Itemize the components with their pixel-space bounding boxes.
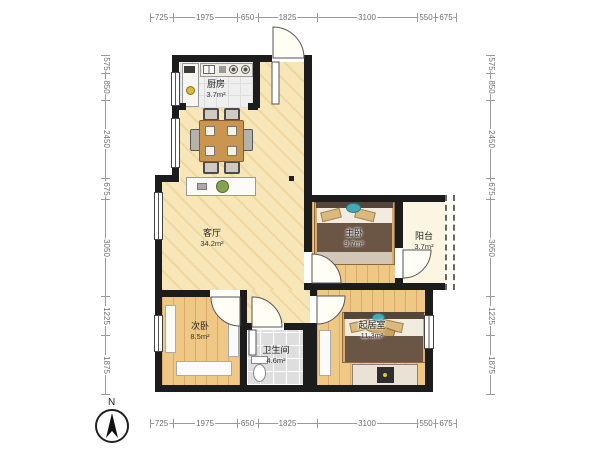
entrance-door-arc <box>273 27 304 58</box>
master-door-arc <box>312 254 341 283</box>
compass-icon <box>95 409 129 443</box>
compass-north-label: N <box>108 397 115 408</box>
room-label-balcony: 阳台3.7m² <box>402 231 446 251</box>
door-arcs <box>0 0 600 450</box>
room-label-secondary: 次卧8.5m² <box>175 321 225 341</box>
sitting-room-door-arc <box>317 296 345 324</box>
room-label-living: 客厅34.2m² <box>186 228 238 248</box>
balcony-door-arc <box>403 250 431 278</box>
entrance-door-leaf <box>272 62 279 104</box>
floor-plan: 725197565018253100550675 725197565018253… <box>0 0 600 450</box>
room-label-kitchen: 厨房3.7m² <box>194 79 238 99</box>
room-label-master: 主卧9.7m² <box>329 228 379 248</box>
room-label-bathroom: 卫生间4.6m² <box>250 345 302 365</box>
room-label-sitting: 起居室11.3m² <box>344 320 400 340</box>
bathroom-door-arc <box>252 297 282 327</box>
